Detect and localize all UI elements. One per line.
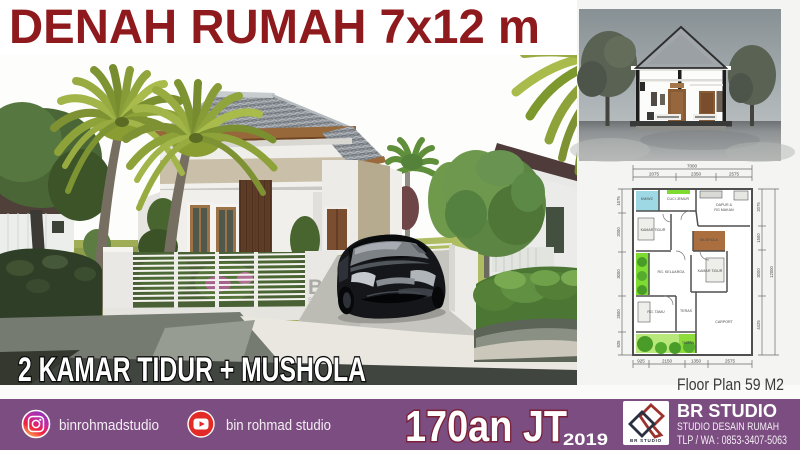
svg-text:1350: 1350 bbox=[691, 359, 702, 364]
svg-text:3000: 3000 bbox=[616, 269, 621, 279]
svg-text:DAPUR &: DAPUR & bbox=[716, 203, 733, 207]
svg-text:7000: 7000 bbox=[687, 164, 698, 169]
svg-text:TLP / WA : 0853-3407-5063: TLP / WA : 0853-3407-5063 bbox=[677, 435, 787, 447]
svg-text:925: 925 bbox=[637, 359, 645, 364]
svg-text:CUCI JEMUR: CUCI JEMUR bbox=[667, 197, 690, 201]
svg-text:binrohmadstudio: binrohmadstudio bbox=[59, 417, 159, 434]
svg-text:MUSHOLA: MUSHOLA bbox=[700, 238, 718, 242]
svg-text:DENAH RUMAH 7x12 m: DENAH RUMAH 7x12 m bbox=[9, 1, 540, 54]
svg-text:2075: 2075 bbox=[756, 202, 761, 212]
svg-text:170an JT: 170an JT bbox=[405, 402, 567, 450]
svg-text:3000: 3000 bbox=[756, 268, 761, 278]
svg-text:1500: 1500 bbox=[756, 233, 761, 243]
svg-text:2575: 2575 bbox=[725, 359, 736, 364]
svg-text:2000: 2000 bbox=[616, 227, 621, 237]
svg-text:1575: 1575 bbox=[616, 196, 621, 206]
svg-text:TERAS: TERAS bbox=[680, 309, 693, 313]
svg-text:Floor Plan 59 M2: Floor Plan 59 M2 bbox=[677, 375, 784, 394]
svg-text:STUDIO DESAIN RUMAH: STUDIO DESAIN RUMAH bbox=[677, 421, 779, 433]
svg-text:2575: 2575 bbox=[729, 172, 740, 177]
svg-text:RG. KELUARGA: RG. KELUARGA bbox=[658, 270, 686, 274]
svg-text:BR STUDIO: BR STUDIO bbox=[630, 438, 662, 443]
svg-text:4425: 4425 bbox=[756, 320, 761, 330]
svg-text:2150: 2150 bbox=[662, 359, 673, 364]
svg-text:RG. TAMU: RG. TAMU bbox=[647, 310, 665, 314]
svg-text:2019: 2019 bbox=[563, 430, 608, 449]
svg-text:2 KAMAR TIDUR + MUSHOLA: 2 KAMAR TIDUR + MUSHOLA bbox=[18, 351, 366, 389]
svg-text:CARPORT: CARPORT bbox=[715, 320, 733, 324]
svg-text:2500: 2500 bbox=[616, 309, 621, 319]
svg-text:KM/WC: KM/WC bbox=[641, 197, 654, 201]
svg-text:TAMAN: TAMAN bbox=[682, 341, 695, 345]
svg-text:12000: 12000 bbox=[769, 266, 774, 278]
svg-text:925: 925 bbox=[616, 340, 621, 348]
svg-text:2350: 2350 bbox=[691, 172, 702, 177]
svg-text:KAMAR TIDUR: KAMAR TIDUR bbox=[698, 269, 723, 273]
svg-text:2075: 2075 bbox=[649, 172, 660, 177]
svg-text:KAMAR TIDUR: KAMAR TIDUR bbox=[641, 228, 666, 232]
svg-text:BR STUDIO: BR STUDIO bbox=[677, 401, 777, 421]
svg-text:RG MAKAN: RG MAKAN bbox=[714, 208, 734, 212]
svg-text:bin rohmad studio: bin rohmad studio bbox=[226, 417, 331, 434]
